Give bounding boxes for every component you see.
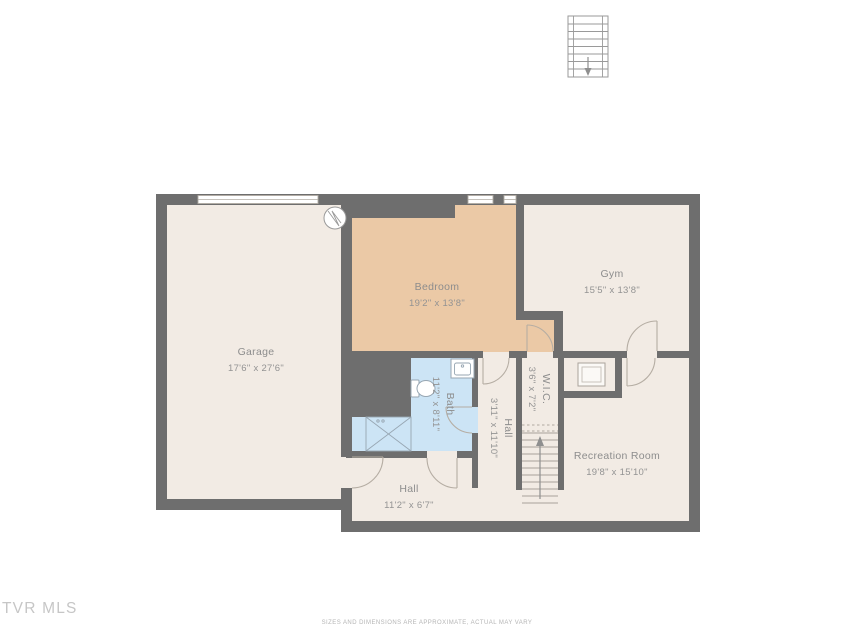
disclaimer-text: SIZES AND DIMENSIONS ARE APPROXIMATE, AC… xyxy=(322,620,533,626)
wall-segment xyxy=(341,205,455,218)
room-dims-garage: 17'6" x 27'6" xyxy=(228,363,284,374)
room-label-hall-vertical: Hall xyxy=(502,418,514,437)
wall-segment xyxy=(341,351,483,358)
wall-segment xyxy=(689,194,700,532)
wall-segment xyxy=(156,499,352,510)
wall-segment xyxy=(558,391,622,398)
floorplan-image: Garage 17'6" x 27'6" Bedroom 19'2" x 13'… xyxy=(0,0,853,640)
room-label-bath: Bath xyxy=(444,393,456,416)
wall-segment xyxy=(516,358,522,490)
wall-segment xyxy=(509,351,527,358)
room-dims-hall-bottom: 11'2" x 6'7" xyxy=(384,500,434,511)
watermark: TVR MLS xyxy=(2,600,78,617)
wall-segment xyxy=(558,358,564,490)
room-label-hall-bottom: Hall xyxy=(399,483,418,495)
room-label-gym: Gym xyxy=(600,268,623,280)
room-dims-gym: 15'5" x 13'8" xyxy=(584,285,640,296)
room-dims-recreation: 19'8" x 15'10" xyxy=(586,467,648,478)
room-dims-wic: 3'6" x 7'2" xyxy=(526,367,537,412)
wall-segment xyxy=(564,351,627,358)
room-dims-bedroom: 19'2" x 13'8" xyxy=(409,298,465,309)
wall-segment xyxy=(341,521,700,532)
wall-segment xyxy=(156,194,167,510)
room-label-bedroom: Bedroom xyxy=(415,281,460,293)
wall-segment xyxy=(553,351,564,358)
wall-segment xyxy=(516,194,524,316)
wall-segment xyxy=(341,194,352,457)
wall-segment xyxy=(341,488,352,499)
floorplan-svg: Garage 17'6" x 27'6" Bedroom 19'2" x 13'… xyxy=(0,0,853,640)
wall-segment xyxy=(457,451,478,458)
room-dims-bath: 11'2" x 8'11" xyxy=(430,377,441,432)
stairs-down-icon xyxy=(568,16,608,77)
room-dims-hall-vertical: 3'11" x 11'10" xyxy=(488,398,499,458)
room-label-recreation: Recreation Room xyxy=(574,450,660,462)
wall-segment xyxy=(657,351,694,358)
room-label-garage: Garage xyxy=(238,346,275,358)
unexcavated-block xyxy=(346,356,411,417)
wall-segment xyxy=(472,433,478,488)
room-label-wic: W.I.C. xyxy=(540,374,552,404)
wall-segment xyxy=(554,311,563,352)
wall-segment xyxy=(615,358,622,398)
